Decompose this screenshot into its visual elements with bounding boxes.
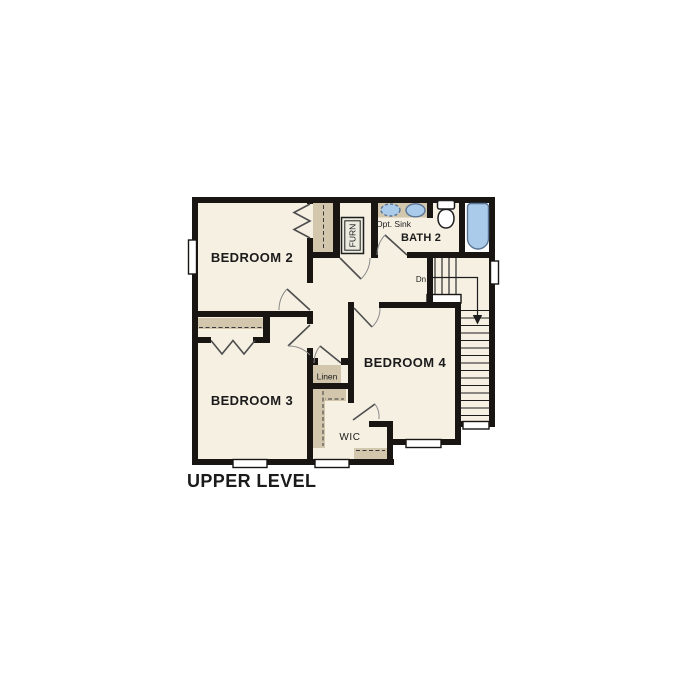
bedroom3-label: BEDROOM 3 <box>211 393 293 408</box>
toilet-fixture <box>438 201 455 229</box>
wic-shelf-bottom <box>354 448 387 459</box>
floor-plan-canvas: BEDROOM 2 BEDROOM 3 BEDROOM 4 BATH 2 Opt… <box>0 0 687 687</box>
bedroom4-label: BEDROOM 4 <box>364 355 447 370</box>
stairs-down-label: Dn <box>416 275 426 284</box>
bathtub-fixture <box>468 204 489 250</box>
plan-title: UPPER LEVEL <box>187 471 316 491</box>
wic-window <box>315 460 349 468</box>
bath2-label: BATH 2 <box>401 232 441 244</box>
floor-plan: BEDROOM 2 BEDROOM 3 BEDROOM 4 BATH 2 Opt… <box>0 0 687 687</box>
optional-sink-fixture <box>381 204 400 216</box>
opt-sink-label: Opt. Sink <box>376 219 412 229</box>
wic-label: WIC <box>339 432 360 443</box>
bedroom4-window <box>406 440 441 448</box>
furnace-label: FURN <box>348 224 358 248</box>
linen-label: Linen <box>317 372 338 382</box>
sink-fixture <box>406 204 425 217</box>
stairs-bottom-window <box>463 422 489 430</box>
stairwell-window <box>491 261 499 284</box>
bedroom2-label: BEDROOM 2 <box>211 250 293 265</box>
bedroom3-window <box>233 460 267 468</box>
bedroom2-window <box>189 240 197 274</box>
